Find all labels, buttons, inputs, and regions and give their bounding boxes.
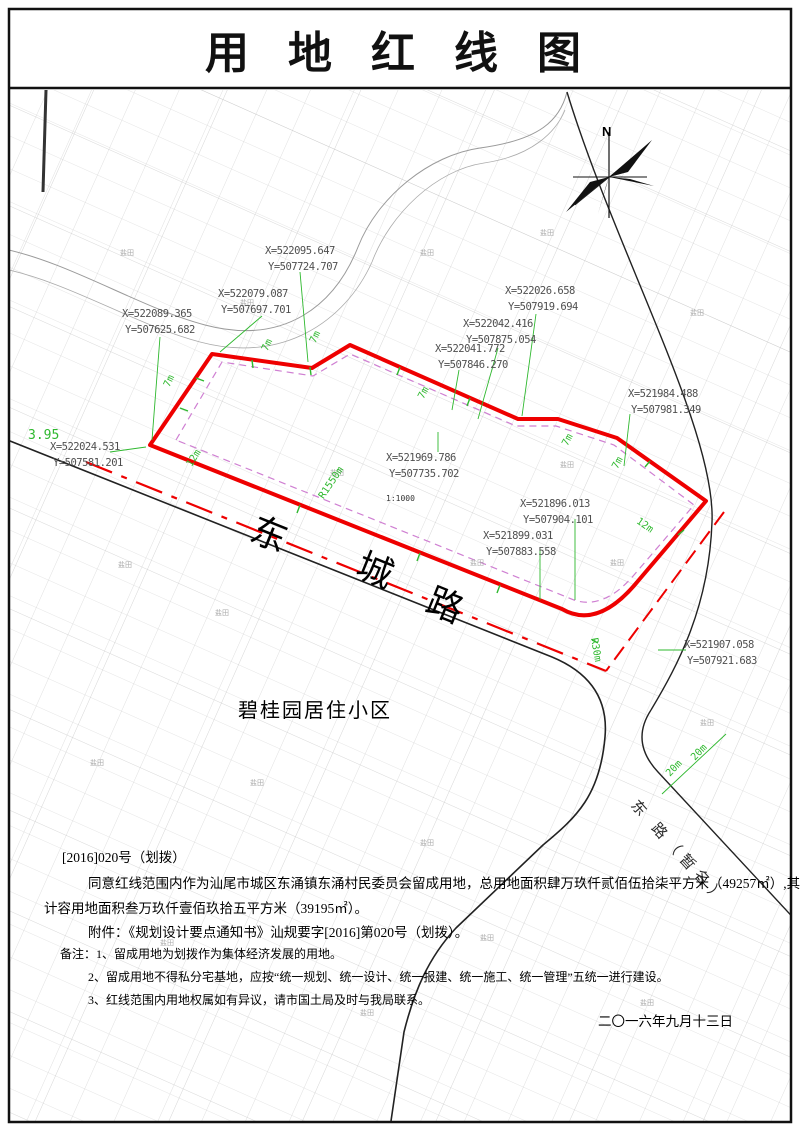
sheet-frame: 用 地 红 线 图 N X=522095.647Y=507724.707 X=5… — [0, 0, 800, 1131]
parcel-speck: 盐田 — [540, 230, 554, 237]
parcel-speck: 盐田 — [250, 780, 264, 787]
parcel-speck: 盐田 — [420, 250, 434, 257]
partial-dimension-label: 3.95 — [28, 428, 59, 443]
parcel-speck: 盐田 — [480, 935, 494, 942]
coordinate-label: X=522089.365Y=507625.682 — [122, 306, 195, 338]
coordinate-label: X=522026.658Y=507919.694 — [505, 283, 578, 315]
sheet-title: 用 地 红 线 图 — [10, 10, 790, 88]
parcel-speck: 盐田 — [420, 840, 434, 847]
scale-label: 1:1000 — [386, 494, 415, 503]
parcel-speck: 盐田 — [610, 560, 624, 567]
parcel-speck: 盐田 — [120, 250, 134, 257]
parcel-speck: 盐田 — [700, 720, 714, 727]
coordinate-label: X=521896.013Y=507904.101 — [520, 496, 593, 528]
note-line-2: 同意红线范围内作为汕尾市城区东涌镇东涌村民委员会留成用地，总用地面积肆万玖仟贰佰… — [88, 872, 800, 892]
coordinate-label: X=522041.772Y=507846.270 — [435, 341, 508, 373]
north-label: N — [602, 124, 611, 139]
coordinate-label: X=521907.058Y=507921.683 — [684, 637, 757, 669]
parcel-speck: 盐田 — [118, 562, 132, 569]
coordinate-label: X=521899.031Y=507883.558 — [483, 528, 556, 560]
note-line-7: 3、红线范围内用地权属如有异议，请市国土局及时与我局联系。 — [88, 991, 430, 1008]
parcel-speck: 盐田 — [640, 1000, 654, 1007]
parcel-speck: 盐田 — [690, 310, 704, 317]
note-line-6: 2、留成用地不得私分宅基地，应按“统一规划、统一设计、统一报建、统一施工、统一管… — [88, 968, 669, 985]
parcel-speck: 盐田 — [360, 1010, 374, 1017]
parcel-speck: 盐田 — [215, 610, 229, 617]
parcel-speck: 盐田 — [560, 462, 574, 469]
coordinate-label: X=522024.531Y=507581.201 — [50, 439, 123, 471]
parcel-speck: 盐田 — [90, 760, 104, 767]
note-line-5: 备注：1、留成用地为划拨作为集体经济发展的用地。 — [60, 945, 342, 962]
parcel-speck: 盐田 — [470, 560, 484, 567]
coordinate-label: X=521984.488Y=507981.349 — [628, 386, 701, 418]
note-line-3: 计容用地面积叁万玖仟壹佰玖拾五平方米（39195㎡）。 — [44, 897, 368, 917]
date-label: 二〇一六年九月十三日 — [598, 1010, 733, 1030]
coordinate-label: X=522095.647Y=507724.707 — [265, 243, 338, 275]
cadastral-mesh — [0, 90, 800, 1121]
coordinate-label: X=522079.087Y=507697.701 — [218, 286, 291, 318]
note-line-1: [2016]020号（划拨） — [62, 846, 186, 866]
coordinate-label: X=521969.786Y=507735.702 — [386, 450, 459, 482]
district-label: 碧桂园居住小区 — [238, 694, 392, 723]
note-line-4: 附件：《规划设计要点通知书》汕规要字[2016]第020号（划拨）。 — [88, 921, 468, 941]
